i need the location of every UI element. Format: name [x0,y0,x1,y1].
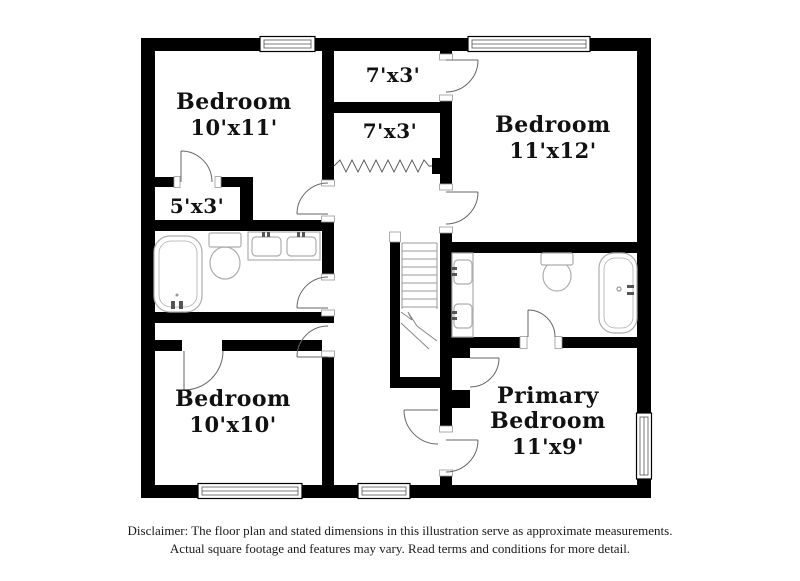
bathtub-left [154,236,202,312]
window-right [637,413,652,479]
door-bathroom-left [297,277,328,308]
door-closet-7x3-top [446,60,478,92]
disclaimer-text: Disclaimer: The floor plan and stated di… [0,522,800,558]
door-primary-bedroom [446,440,478,472]
door-bedroom-10x10 [184,351,223,390]
room-label-primary-bedroom: Primary Bedroom 11'x9' [490,384,606,459]
room-label-bedroom-10x10: Bedroom 10'x10' [175,387,291,437]
door-bedroom-11x12 [446,192,478,224]
window-bottom-center [358,484,410,499]
floor-plan-drawing [0,0,800,581]
door-bathroom-right [528,310,555,337]
floor-plan-page: Bedroom 10'x11' 7'x3' 7'x3' Bedroom 11'x… [0,0,800,581]
toilet-right [541,253,573,291]
toilet-left [209,233,241,279]
staircase [401,243,437,349]
window-bottom-left [198,484,302,499]
room-name: Bedroom [176,90,292,115]
double-vanity [248,232,320,260]
disclaimer-line-2: Actual square footage and features may v… [0,540,800,558]
room-dims: 11'x9' [490,434,606,459]
door-hall-lower [404,410,438,444]
accordion-door-icon [334,160,432,172]
room-dims: 10'x11' [176,115,292,140]
room-name-line1: Primary [490,384,606,409]
room-label-closet-top: 7'x3' [366,63,421,87]
window-top-right [468,37,590,52]
disclaimer-line-1: Disclaimer: The floor plan and stated di… [0,522,800,540]
room-name: Bedroom [495,113,611,138]
room-label-bedroom-11x12: Bedroom 11'x12' [495,113,611,163]
room-name-line2: Bedroom [490,409,606,434]
room-label-bedroom-10x11: Bedroom 10'x11' [176,90,292,140]
room-dims: 10'x10' [175,412,291,437]
room-dims: 11'x12' [495,138,611,163]
window-top-left [260,37,315,52]
vanity-right [452,253,473,337]
door-bedroom-10x11 [297,183,328,214]
room-label-closet-mid: 7'x3' [363,119,418,143]
room-label-closet-5x3: 5'x3' [170,194,225,218]
door-linen-closet [470,358,499,387]
room-name: Bedroom [175,387,291,412]
bathtub-right [599,253,637,333]
door-closet-5x3 [181,151,212,182]
